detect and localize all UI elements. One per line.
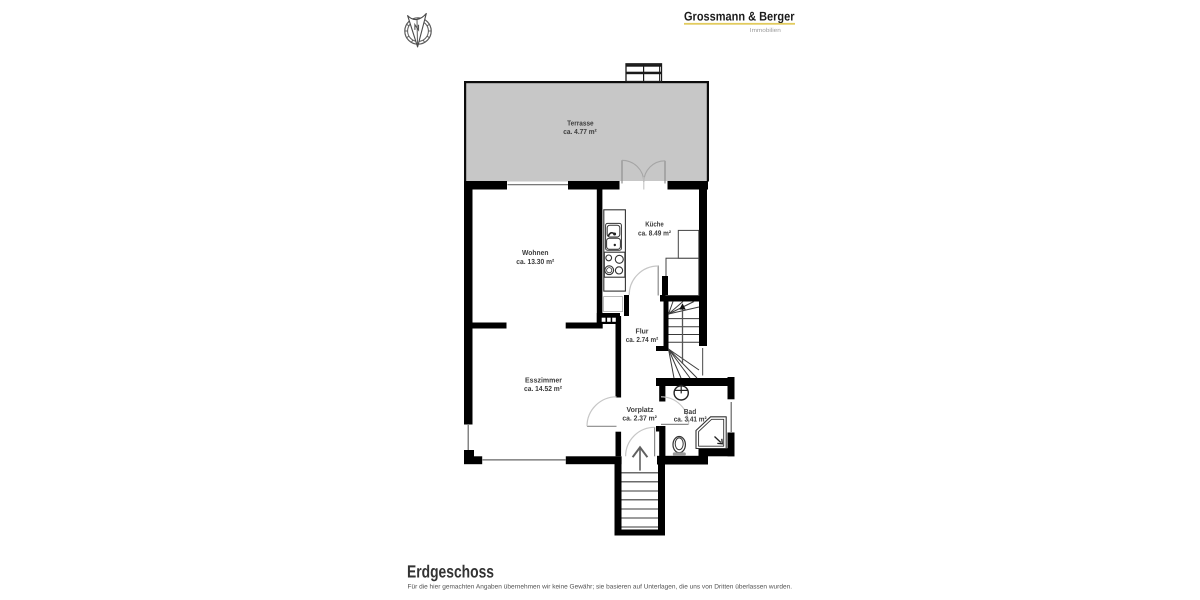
svg-text:ca. 14.52 m²: ca. 14.52 m² bbox=[524, 384, 563, 393]
svg-text:ca. 13.30 m²: ca. 13.30 m² bbox=[516, 257, 555, 266]
svg-text:ca. 2.37 m²: ca. 2.37 m² bbox=[622, 413, 657, 422]
svg-text:ca. 4.77 m²: ca. 4.77 m² bbox=[563, 127, 597, 136]
svg-text:Für die hier gemachten Angaben: Für die hier gemachten Angaben übernehme… bbox=[408, 584, 793, 591]
svg-text:Erdgeschoss: Erdgeschoss bbox=[407, 562, 494, 582]
svg-text:ca. 8.49 m²: ca. 8.49 m² bbox=[638, 229, 671, 238]
svg-text:Küche: Küche bbox=[645, 220, 664, 229]
svg-text:Grossmann & Berger: Grossmann & Berger bbox=[684, 9, 795, 23]
svg-text:ca. 3.41 m²: ca. 3.41 m² bbox=[674, 414, 707, 423]
svg-text:ca. 2.74 m²: ca. 2.74 m² bbox=[626, 335, 659, 344]
svg-text:Immobilien: Immobilien bbox=[750, 27, 781, 34]
svg-text:Wohnen: Wohnen bbox=[522, 248, 549, 257]
